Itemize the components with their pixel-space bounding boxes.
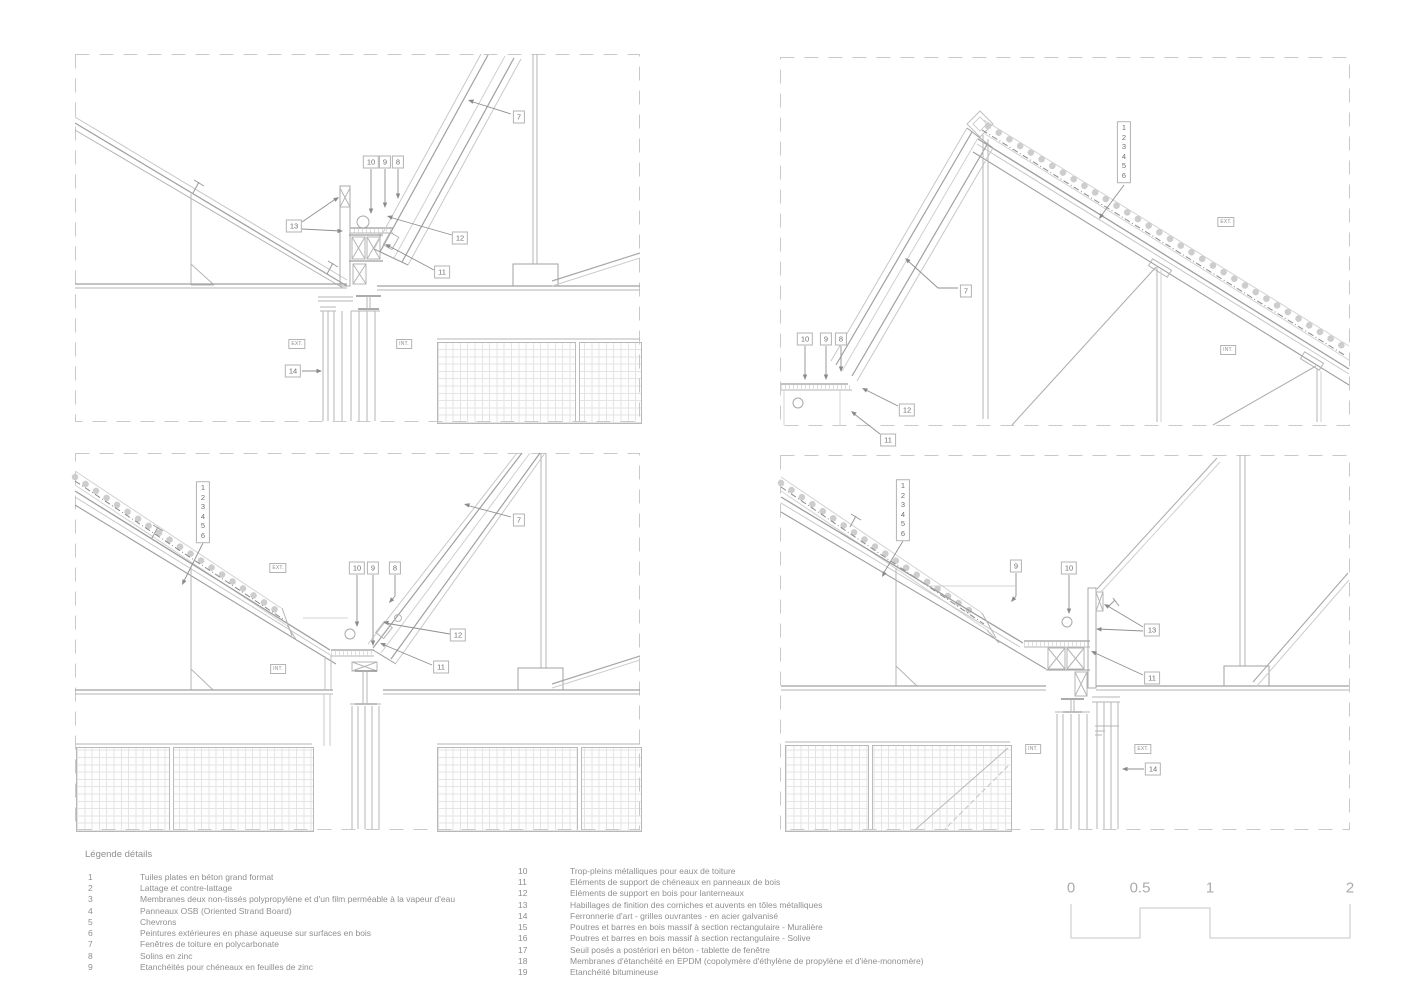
callout-8: 8 (835, 333, 847, 346)
stack-num: 4 (1122, 152, 1126, 162)
panel-bottom-left-labels: 1 2 3 4 5 6 7 10 9 8 12 11 EXT. INT. (0, 0, 1414, 1000)
label-interior: INT. (1220, 345, 1236, 355)
legend-item-text: Eléments de support de chéneaux en panne… (570, 877, 998, 887)
drawing-sheet: 7 10 9 8 13 12 11 14 EXT. INT. 1 2 3 4 5… (0, 0, 1414, 1000)
legend-item: 16Poutres et barres en bois massif à sec… (518, 933, 998, 944)
panel-top-right-labels: 1 2 3 4 5 6 7 10 9 8 12 11 EXT. INT. (0, 0, 1414, 1000)
legend-item-number: 3 (88, 894, 140, 904)
masonry-divider (575, 342, 580, 422)
callout-11: 11 (880, 434, 896, 447)
legend-item-number: 7 (88, 939, 140, 949)
legend-item-number: 1 (88, 872, 140, 882)
panel-bottom-right-labels: 1 2 3 4 5 6 9 10 13 11 14 INT. EXT. (0, 0, 1414, 1000)
callout-10: 10 (363, 156, 379, 169)
callout-9: 9 (1010, 560, 1022, 573)
label-interior: INT. (1025, 744, 1041, 754)
legend-item-text: Membranes deux non-tissés polypropylène … (140, 894, 508, 904)
callout-9: 9 (367, 562, 379, 575)
callout-7: 7 (960, 285, 972, 298)
legend-item-number: 8 (88, 951, 140, 961)
legend-item-number: 18 (518, 956, 570, 966)
scale-label-0-5: 0.5 (1130, 880, 1151, 897)
legend-item-number: 17 (518, 945, 570, 955)
callout-14: 14 (1145, 763, 1161, 776)
stack-num: 2 (1122, 133, 1126, 143)
callout-7: 7 (513, 514, 525, 527)
legend-item-text: Etanchéités pour chéneaux en feuilles de… (140, 962, 508, 972)
legend-item: 14Ferronnerie d'art - grilles ouvrantes … (518, 910, 998, 921)
legend-item-text: Trop-pleins métalliques pour eaux de toi… (570, 866, 998, 876)
legend-item: 6Peintures extérieures en phase aqueuse … (88, 927, 508, 938)
stack-num: 3 (901, 500, 905, 510)
stack-num: 4 (901, 510, 905, 520)
stack-num: 2 (201, 493, 205, 503)
legend-item-number: 16 (518, 933, 570, 943)
legend-item: 9Etanchéités pour chéneaux en feuilles d… (88, 961, 508, 972)
masonry-hatch-bottom-left-b (437, 747, 642, 832)
legend-title: Légende détails (85, 849, 152, 860)
scale-label-1: 1 (1206, 880, 1214, 897)
legend-item-number: 4 (88, 906, 140, 916)
callout-10: 10 (349, 562, 365, 575)
callout-9: 9 (820, 333, 832, 346)
legend-item-number: 14 (518, 911, 570, 921)
legend-item-number: 19 (518, 967, 570, 977)
callout-12: 12 (450, 629, 466, 642)
legend-item-number: 12 (518, 888, 570, 898)
scale-bar (1071, 904, 1350, 938)
callout-13: 13 (1144, 624, 1160, 637)
legend-item-text: Panneaux OSB (Oriented Strand Board) (140, 906, 508, 916)
label-exterior: EXT. (1134, 744, 1151, 754)
stack-num: 2 (901, 491, 905, 501)
panel-top-right-drawing (781, 58, 1350, 435)
callout-stack-1-6: 1 2 3 4 5 6 (196, 481, 210, 543)
legend-item: 12Eléments de support en bois pour lante… (518, 888, 998, 899)
legend-item: 17Seuil posés a postériori en béton - ta… (518, 944, 998, 955)
callout-13: 13 (286, 220, 302, 233)
legend-item-text: Lattage et contre-lattage (140, 883, 508, 893)
scale-label-2: 2 (1346, 880, 1354, 897)
legend-item-text: Ferronnerie d'art - grilles ouvrantes - … (570, 911, 998, 921)
legend-item: 10Trop-pleins métalliques pour eaux de t… (518, 865, 998, 876)
masonry-hatch-top-left (437, 342, 642, 424)
drawing-linework (0, 0, 1414, 1000)
legend-item: 5Chevrons (88, 916, 508, 927)
legend-item: 1Tuiles plates en béton grand format (88, 871, 508, 882)
masonry-hatch-bottom-left-a (76, 747, 314, 832)
callout-12: 12 (899, 404, 915, 417)
callout-9: 9 (379, 156, 391, 169)
callout-11: 11 (433, 661, 449, 674)
legend-item-text: Etanchéité bitumineuse (570, 967, 998, 977)
stack-num: 3 (201, 502, 205, 512)
stack-num: 6 (1122, 171, 1126, 181)
legend-item: 15Poutres et barres en bois massif à sec… (518, 921, 998, 932)
stack-num: 5 (201, 522, 205, 532)
masonry-divider (868, 745, 873, 830)
stack-num: 5 (901, 520, 905, 530)
legend-item-text: Poutres et barres en bois massif à secti… (570, 933, 998, 943)
callout-14: 14 (285, 365, 301, 378)
legend-item-number: 11 (518, 877, 570, 887)
callout-8: 8 (392, 156, 404, 169)
legend-column-left: 1Tuiles plates en béton grand format 2La… (88, 871, 508, 973)
masonry-divider (169, 747, 174, 830)
stack-num: 6 (901, 529, 905, 539)
legend-item-text: Chevrons (140, 917, 508, 927)
legend-item-text: Fenêtres de toiture en polycarbonate (140, 939, 508, 949)
callout-stack-1-6: 1 2 3 4 5 6 (1117, 121, 1131, 183)
panel-top-left-labels: 7 10 9 8 13 12 11 14 EXT. INT. (0, 0, 1414, 1000)
legend-item-number: 9 (88, 962, 140, 972)
legend-item: 2Lattage et contre-lattage (88, 882, 508, 893)
label-exterior: EXT. (1217, 217, 1234, 227)
scale-label-0: 0 (1067, 880, 1075, 897)
label-exterior: EXT. (269, 563, 286, 573)
callout-11: 11 (1144, 672, 1160, 685)
stack-num: 6 (201, 531, 205, 541)
stack-num: 1 (201, 483, 205, 493)
legend-item-text: Habillages de finition des corniches et … (570, 900, 998, 910)
legend-item-text: Seuil posés a postériori en béton - tabl… (570, 945, 998, 955)
callout-8: 8 (389, 562, 401, 575)
legend-item: 8Solins en zinc (88, 950, 508, 961)
legend-item: 19Etanchéité bitumineuse (518, 967, 998, 978)
legend-item: 4Panneaux OSB (Oriented Strand Board) (88, 905, 508, 916)
stack-num: 5 (1122, 162, 1126, 172)
legend-item-text: Peintures extérieures en phase aqueuse s… (140, 928, 508, 938)
legend-item-number: 5 (88, 917, 140, 927)
callout-10: 10 (797, 333, 813, 346)
legend-item: 13Habillages de finition des corniches e… (518, 899, 998, 910)
label-exterior: EXT. (288, 339, 305, 349)
legend-item-number: 13 (518, 900, 570, 910)
legend-item-text: Membranes d'étanchéité en EPDM (copolymè… (570, 956, 998, 966)
callout-12: 12 (452, 232, 468, 245)
legend-item-text: Eléments de support en bois pour lantern… (570, 888, 998, 898)
masonry-divider (577, 747, 582, 830)
label-interior: INT. (396, 339, 412, 349)
stack-num: 1 (901, 481, 905, 491)
legend-item-text: Poutres et barres en bois massif à secti… (570, 922, 998, 932)
label-interior: INT. (270, 664, 286, 674)
legend-item-number: 15 (518, 922, 570, 932)
callout-10: 10 (1061, 562, 1077, 575)
stack-num: 4 (201, 512, 205, 522)
legend-item: 3Membranes deux non-tissés polypropylène… (88, 894, 508, 905)
legend-item: 18Membranes d'étanchéité en EPDM (copoly… (518, 955, 998, 966)
legend-item: 7Fenêtres de toiture en polycarbonate (88, 939, 508, 950)
callout-stack-1-6: 1 2 3 4 5 6 (896, 479, 910, 541)
legend-column-right: 10Trop-pleins métalliques pour eaux de t… (518, 865, 998, 978)
legend-item-number: 2 (88, 883, 140, 893)
callout-11: 11 (434, 266, 450, 279)
callout-7: 7 (513, 111, 525, 124)
legend-item-text: Solins en zinc (140, 951, 508, 961)
legend-item-number: 6 (88, 928, 140, 938)
legend-item: 11Eléments de support de chéneaux en pan… (518, 876, 998, 887)
legend-item-number: 10 (518, 866, 570, 876)
legend-item-text: Tuiles plates en béton grand format (140, 872, 508, 882)
masonry-hatch-bottom-right (785, 745, 1012, 832)
stack-num: 1 (1122, 123, 1126, 133)
stack-num: 3 (1122, 142, 1126, 152)
